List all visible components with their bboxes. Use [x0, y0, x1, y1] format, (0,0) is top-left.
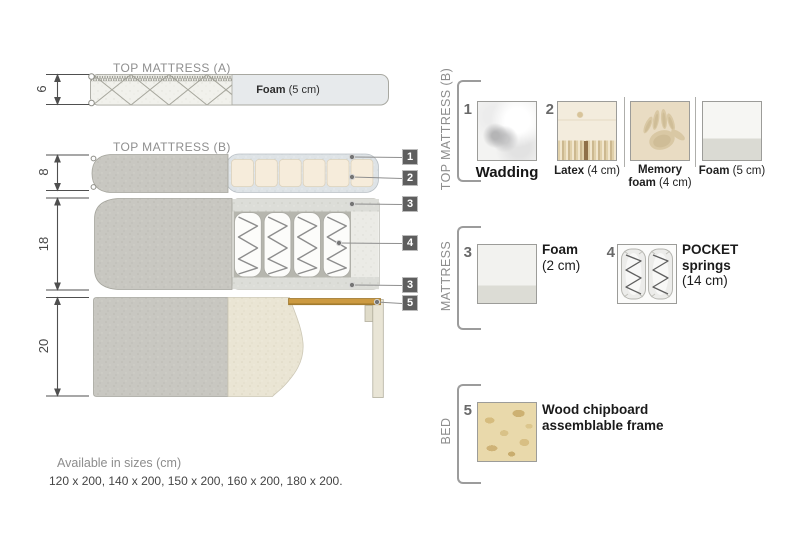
- item-number-4: 4: [602, 244, 615, 261]
- pocket-springs-icon: [618, 245, 676, 303]
- foam2-swatch: [477, 244, 537, 304]
- foam-layer-label: Foam (5 cm): [236, 84, 340, 96]
- available-sizes-heading: Available in sizes (cm): [57, 456, 181, 470]
- swatch-divider-1: [624, 97, 625, 167]
- foam5-size: (5 cm): [729, 165, 765, 177]
- wadding-swatch: [477, 101, 537, 161]
- pocket-springs-swatch: [617, 244, 677, 304]
- chipboard-line1: Wood chipboard: [542, 402, 664, 418]
- memory-foam-caption: Memory foam (4 cm): [622, 164, 698, 189]
- chipboard-line2: assemblable frame: [542, 418, 664, 434]
- top-mattress-b-shape: [91, 154, 378, 193]
- dim-8: 8: [35, 161, 51, 183]
- pocket-name-line1: POCKET: [682, 242, 738, 258]
- foam5-caption: Foam (5 cm): [694, 165, 770, 178]
- top-mattress-a-title: TOP MATTRESS (A): [113, 61, 231, 75]
- section-title-top-mattress-b: TOP MATTRESS (B): [439, 68, 453, 190]
- memory-foam-swatch: [630, 101, 690, 161]
- memory-size: (4 cm): [656, 177, 692, 189]
- latex-name: Latex: [554, 165, 584, 177]
- chipboard-label: Wood chipboard assemblable frame: [542, 402, 664, 433]
- foam-label-size: (5 cm): [286, 84, 320, 96]
- pocket-size: (14 cm): [682, 273, 738, 289]
- memory-name-line1: Memory: [638, 164, 682, 176]
- item-number-1: 1: [459, 101, 472, 118]
- callout-4: 4: [402, 235, 418, 251]
- slat-bracket: [365, 306, 373, 322]
- foam5-name: Foam: [699, 165, 730, 177]
- swatch-divider-2: [695, 97, 696, 167]
- dimension-arrows: [46, 75, 89, 397]
- item-number-5: 5: [459, 402, 472, 419]
- dim-20: 20: [35, 335, 51, 357]
- wadding-caption: Wadding: [470, 164, 544, 181]
- foam-label-bold: Foam: [256, 84, 285, 96]
- callout-2: 2: [402, 170, 418, 186]
- side-rail: [373, 300, 384, 398]
- dim-6: 6: [33, 78, 49, 100]
- bed-fabric-drape: [228, 298, 303, 397]
- latex-caption: Latex (4 cm): [549, 165, 625, 178]
- pocket-springs-label: POCKET springs (14 cm): [682, 242, 738, 289]
- top-mattress-b-title: TOP MATTRESS (B): [113, 140, 231, 154]
- chipboard-swatch: [477, 402, 537, 462]
- latex-swatch: [557, 101, 617, 161]
- callout-3: 3: [402, 196, 418, 212]
- dim-18: 18: [35, 233, 51, 255]
- bed-shape: [94, 298, 384, 398]
- foam5-swatch: [702, 101, 762, 161]
- section-title-mattress: MATTRESS: [439, 241, 453, 311]
- pocket-name-line2: springs: [682, 258, 738, 274]
- infographic-bed-layers: TOP MATTRESS (A) TOP MATTRESS (B) Foam (…: [0, 0, 800, 533]
- available-sizes-list: 120 x 200, 140 x 200, 150 x 200, 160 x 2…: [49, 474, 343, 488]
- memory-name-line2: foam: [628, 177, 655, 189]
- hand-imprint-icon: [631, 102, 689, 160]
- stitch-zigzag: [91, 76, 232, 82]
- item-number-2: 2: [541, 101, 554, 118]
- bed-layers-diagram: [0, 0, 440, 533]
- section-title-bed: BED: [439, 418, 453, 445]
- foam2-name: Foam: [542, 242, 580, 258]
- callout-1: 1: [402, 149, 418, 165]
- callout-3b: 3: [402, 277, 418, 293]
- foam2-size: (2 cm): [542, 258, 580, 274]
- callout-5: 5: [402, 295, 418, 311]
- foam2-label: Foam (2 cm): [542, 242, 580, 273]
- latex-size: (4 cm): [584, 165, 620, 177]
- item-number-3: 3: [459, 244, 472, 261]
